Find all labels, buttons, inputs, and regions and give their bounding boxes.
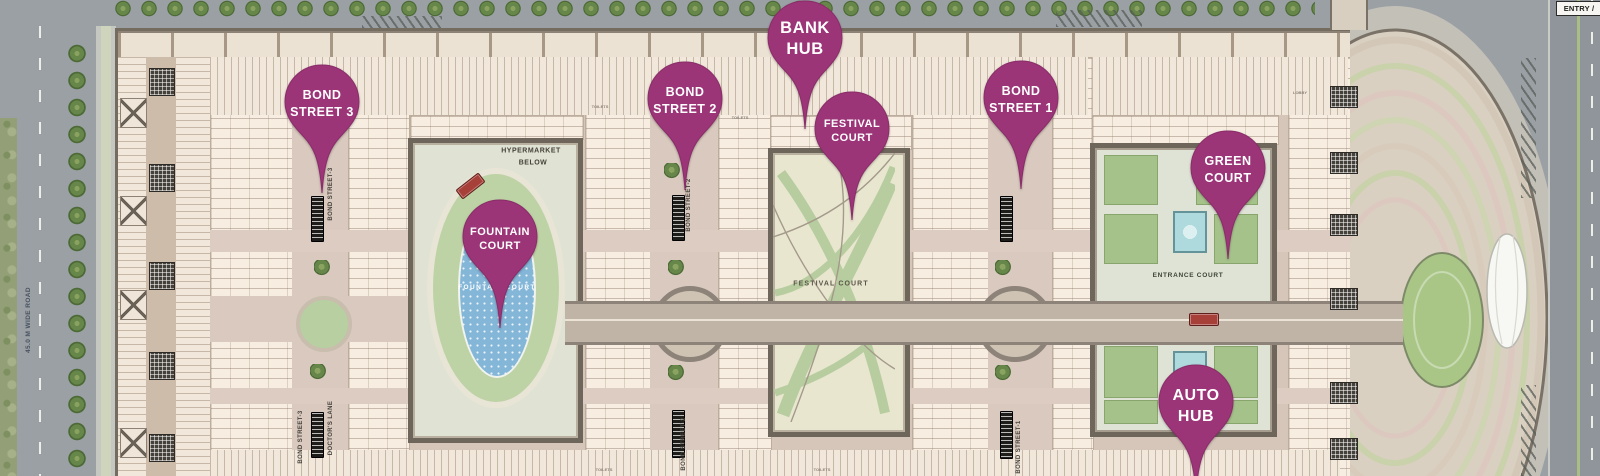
road-edge-line	[1548, 0, 1550, 476]
shop-block	[1288, 57, 1352, 476]
shuttle-bus-icon	[1189, 313, 1219, 326]
chevron-marking	[1521, 385, 1536, 476]
chevron-marking	[1056, 10, 1142, 27]
shaft-box	[120, 290, 147, 320]
north-shop-band	[1092, 57, 1348, 115]
tree-icon	[668, 365, 685, 382]
service-core	[149, 434, 175, 462]
shaft-box	[120, 98, 147, 128]
tree-icon	[995, 365, 1012, 382]
pin-auto-hub[interactable]: AUTOHUB	[1158, 364, 1234, 476]
pin-bond-street-2[interactable]: BONDSTREET 2	[647, 61, 723, 193]
west-road-label: 45.0 M WIDE ROAD	[26, 287, 33, 353]
tree-icon	[668, 260, 685, 277]
shop-block	[210, 57, 294, 476]
road-median-line	[565, 319, 1403, 321]
lawn-panel	[1104, 400, 1158, 424]
escalator	[311, 196, 324, 242]
tree-icon	[314, 260, 331, 277]
entry-driveway	[1330, 0, 1368, 30]
lawn-panel	[1104, 214, 1158, 264]
service-core	[1330, 86, 1358, 108]
east-cap-landscape	[1350, 0, 1548, 476]
service-core	[149, 68, 175, 96]
road-median-green	[1577, 0, 1580, 476]
pin-green-court[interactable]: GREENCOURT	[1190, 130, 1266, 262]
toilets-label: TOILETS	[596, 468, 613, 472]
toilets-label: TOILETS	[814, 468, 831, 472]
service-core	[1330, 382, 1358, 404]
green-verge	[0, 118, 17, 476]
service-core	[149, 352, 175, 380]
chevron-marking	[362, 16, 442, 28]
shop-block	[585, 57, 652, 476]
lobby-label: LOBBY	[1293, 91, 1307, 95]
festival-court-label: FESTIVAL COURT	[793, 281, 868, 288]
footpath-green-band	[101, 26, 111, 476]
pin-bond-street-3[interactable]: BONDSTREET 3	[284, 64, 360, 196]
plaza-lawn-circle	[296, 296, 352, 352]
north-facade-arcade	[118, 31, 1395, 60]
service-core	[149, 164, 175, 192]
site-plan-map: ENTRY / 45.0 M WIDE ROAD HYPERMARKET BEL…	[0, 0, 1600, 476]
central-spine-road	[565, 301, 1403, 345]
pin-fountain-court[interactable]: FOUNTAINCOURT	[462, 199, 538, 331]
toilets-label: TOILETS	[732, 116, 749, 120]
road-lane-marking	[1591, 0, 1593, 476]
street-label-doctors-lane: DOCTOR'S LANE	[328, 401, 334, 456]
escalator	[672, 195, 685, 241]
service-core	[1330, 288, 1358, 310]
shaft-box	[120, 428, 147, 458]
hypermarket-label-line1: HYPERMARKET	[501, 148, 561, 155]
pin-festival-court[interactable]: FESTIVALCOURT	[814, 91, 890, 223]
entry-sign: ENTRY /	[1556, 1, 1600, 16]
chevron-marking	[1521, 58, 1536, 198]
tree-icon	[310, 364, 327, 381]
street-label-bond-street-2: BOND STREET-2	[681, 417, 687, 470]
tree-row	[65, 40, 91, 476]
hypermarket-label-line2: BELOW	[519, 160, 548, 167]
service-core	[1330, 214, 1358, 236]
shaft-box	[120, 196, 147, 226]
service-core	[1330, 152, 1358, 174]
service-core	[149, 262, 175, 290]
road-lane-marking	[39, 26, 41, 476]
tree-icon	[995, 260, 1012, 277]
lawn-panel	[1104, 155, 1158, 205]
pin-bond-street-1[interactable]: BONDSTREET 1	[983, 60, 1059, 192]
escalator	[311, 412, 324, 458]
shop-block	[912, 57, 990, 476]
street-label-bond-street-3: BOND STREET-3	[298, 410, 304, 463]
street-label-bond-street-1: BOND STREET-1	[1016, 420, 1022, 473]
service-core	[1330, 438, 1358, 460]
entrance-court-label: ENTRANCE COURT	[1153, 273, 1224, 280]
shop-block	[410, 115, 584, 140]
lawn-panel	[1104, 346, 1158, 398]
escalator	[1000, 196, 1013, 242]
toilets-label: TOILETS	[592, 105, 609, 109]
escalator	[1000, 411, 1013, 459]
